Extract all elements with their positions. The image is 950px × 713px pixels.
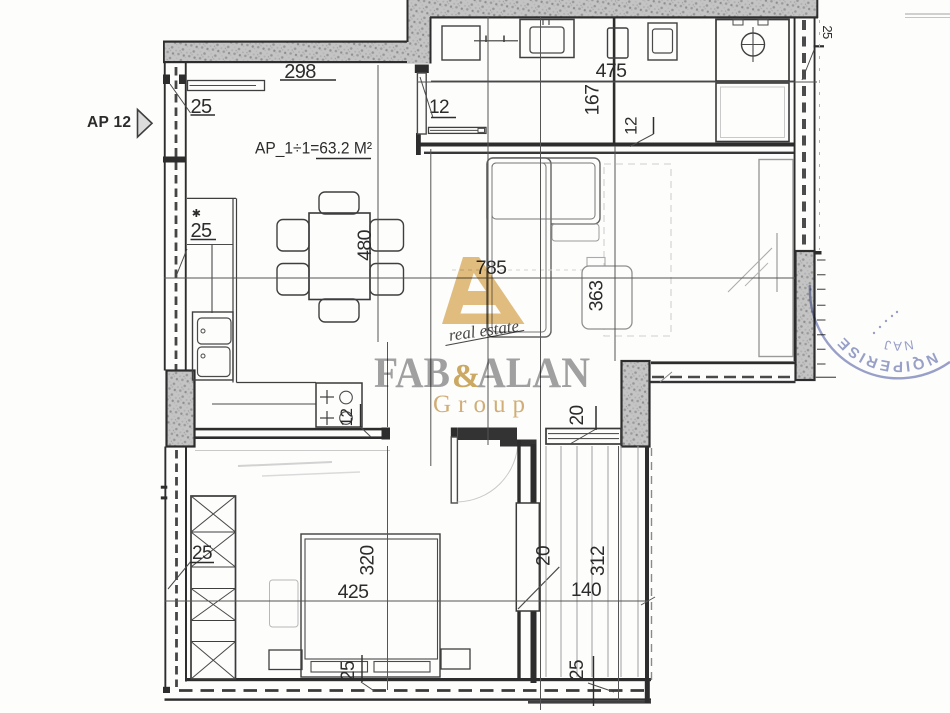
svg-text:AP_1÷1=63.2 M²: AP_1÷1=63.2 M² bbox=[255, 139, 372, 158]
svg-text:AP 12: AP 12 bbox=[87, 114, 131, 131]
svg-text:312: 312 bbox=[588, 546, 609, 576]
svg-text:363: 363 bbox=[586, 281, 608, 312]
svg-text:NAJ: NAJ bbox=[881, 337, 914, 354]
svg-text:25: 25 bbox=[338, 661, 359, 681]
svg-text:✱: ✱ bbox=[192, 208, 201, 220]
svg-text:FAB: FAB bbox=[374, 350, 450, 397]
svg-text:480: 480 bbox=[354, 229, 376, 260]
svg-text:12: 12 bbox=[622, 117, 641, 135]
svg-text:Group: Group bbox=[433, 391, 536, 418]
svg-text:25: 25 bbox=[567, 660, 588, 680]
svg-text:167: 167 bbox=[582, 85, 604, 116]
svg-text:25: 25 bbox=[192, 543, 212, 564]
svg-text:140: 140 bbox=[571, 580, 601, 601]
svg-text:475: 475 bbox=[596, 60, 627, 82]
svg-text:320: 320 bbox=[358, 546, 379, 576]
svg-text:12: 12 bbox=[337, 409, 356, 427]
svg-text:425: 425 bbox=[338, 581, 369, 603]
svg-text:ALAN: ALAN bbox=[477, 350, 590, 397]
svg-text:25: 25 bbox=[820, 25, 835, 39]
svg-text:20: 20 bbox=[534, 546, 555, 566]
svg-text:20: 20 bbox=[567, 406, 588, 426]
